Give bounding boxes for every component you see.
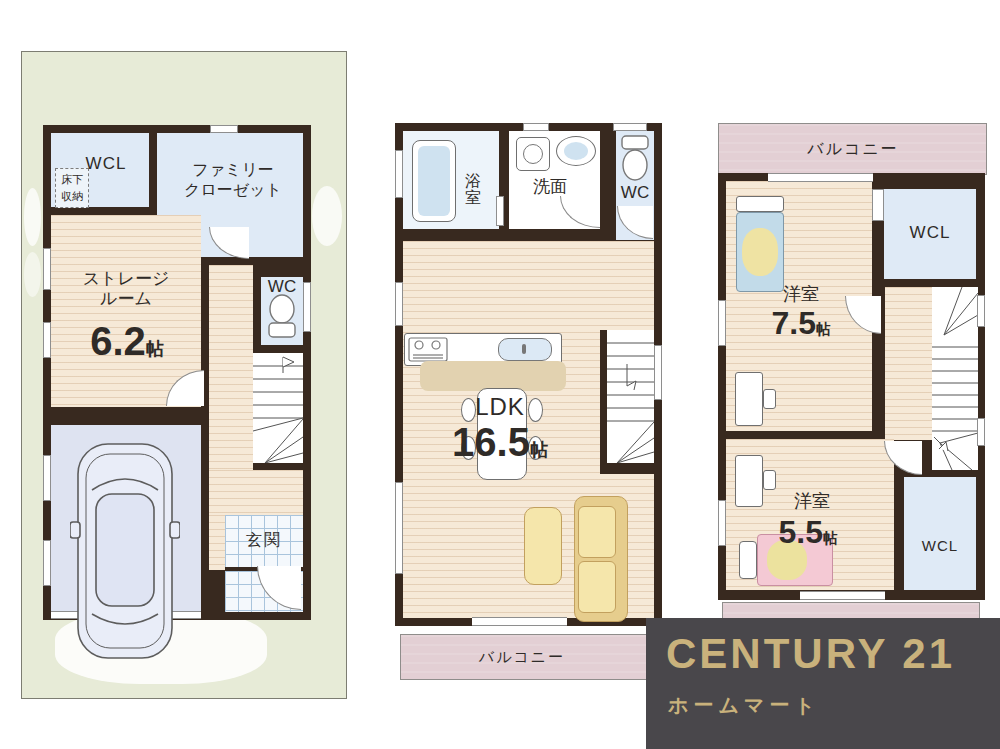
window-55-bottom [800, 591, 885, 600]
label-bath: 浴 室 [465, 173, 481, 207]
underfloor-label-2: 収納 [61, 189, 83, 203]
room1-size-number: 7.5 [772, 305, 816, 341]
bed-55-pillow [739, 541, 757, 579]
storage-size-unit: 帖 [146, 339, 164, 359]
label-storage-1: ストレージ [83, 268, 170, 290]
underfloor-label-1: 床下 [61, 172, 83, 186]
stairs-2f-wall [600, 330, 607, 473]
desk-75 [735, 372, 763, 426]
wcl-upper-opening [872, 189, 884, 221]
window [43, 248, 51, 290]
window [303, 282, 311, 332]
ground-highlight [24, 252, 41, 297]
bath-char-2: 室 [465, 190, 481, 207]
window [43, 322, 51, 358]
kitchen-faucet [522, 344, 526, 354]
label-wc-2f: WC [621, 182, 649, 204]
sofa-cushion [578, 561, 616, 613]
storage-size-number: 6.2 [90, 319, 146, 363]
floorplan-image: 床下 収納 WCL ファミリー クローゼット ストレージ ルーム 6.2帖 WC [0, 0, 1000, 749]
sofa-ottoman [524, 507, 562, 585]
balcony-door-3f [768, 173, 873, 182]
label-western-55: 洋室 [794, 490, 830, 513]
label-storage-2: ルーム [100, 288, 152, 310]
ldk-size-unit: 帖 [530, 440, 548, 460]
label-western-55-size: 5.5帖 [779, 512, 838, 554]
label-wc-1f: WC [268, 276, 296, 298]
hallway-1f-lower [209, 470, 303, 515]
bath-char-1: 浴 [465, 173, 481, 190]
bath-door [496, 196, 504, 226]
hallway-1f-strip [209, 515, 225, 570]
century21-company-text: ホームマート [668, 692, 820, 719]
car-icon [70, 438, 180, 666]
stove-icon [408, 337, 448, 362]
window [43, 540, 51, 586]
label-ldk-size: 16.5帖 [452, 416, 548, 468]
toilet-icon-2f [620, 134, 650, 184]
window [613, 123, 647, 131]
window [977, 295, 985, 327]
washer-door [523, 144, 543, 164]
label-balcony-2f: バルコニー [479, 647, 565, 667]
label-storage-size: 6.2帖 [90, 315, 164, 367]
sofa-cushion [578, 506, 616, 558]
toilet-icon-1f [266, 293, 298, 341]
label-balcony-3f: バルコニー [807, 139, 899, 160]
label-family-closet-1: ファミリー [192, 160, 274, 181]
room2-size-unit: 帖 [823, 530, 837, 546]
kitchen-island [420, 361, 566, 391]
stairs-3f [932, 287, 978, 470]
window [523, 123, 549, 131]
stairs-1f [253, 353, 303, 463]
label-wcl-3f-upper: WCL [910, 222, 951, 244]
label-wcl-1f: WCL [86, 153, 127, 175]
century21-brand-text: CENTURY 21 [666, 630, 955, 678]
label-entrance: 玄関 [246, 530, 282, 551]
bathtub-water [418, 146, 450, 216]
window [395, 482, 403, 574]
desk-chair [763, 470, 776, 490]
ldk-size-number: 16.5 [452, 420, 530, 464]
hallway-3f [885, 287, 932, 440]
window [395, 150, 403, 198]
desk-chair [763, 389, 776, 409]
label-family-closet-2: クローゼット [184, 180, 282, 201]
room-wcl-3f-lower [904, 477, 976, 590]
window [718, 500, 726, 546]
label-wcl-3f-lower: WCL [922, 536, 958, 556]
window [210, 125, 238, 133]
stairs-2f-wall-bottom [600, 463, 654, 474]
label-western-75-size: 7.5帖 [772, 303, 831, 345]
room1-size-unit: 帖 [816, 321, 830, 337]
desk-55 [735, 455, 763, 507]
bed-75-blanket [742, 228, 778, 276]
sink-bowl [564, 142, 588, 160]
label-washroom: 洗面 [533, 176, 567, 198]
window [43, 455, 51, 501]
ground-highlight [312, 186, 342, 246]
bed-headboard [736, 196, 784, 212]
century21-logo: CENTURY 21 ホームマート [646, 618, 1000, 749]
window [654, 345, 662, 400]
hallway-1f [209, 265, 253, 470]
window [395, 282, 403, 326]
window [977, 418, 985, 446]
room2-size-number: 5.5 [779, 514, 823, 550]
balcony-door-2f [472, 617, 567, 626]
stairs-2f [607, 330, 654, 463]
window [718, 300, 726, 346]
ground-highlight [24, 188, 41, 246]
